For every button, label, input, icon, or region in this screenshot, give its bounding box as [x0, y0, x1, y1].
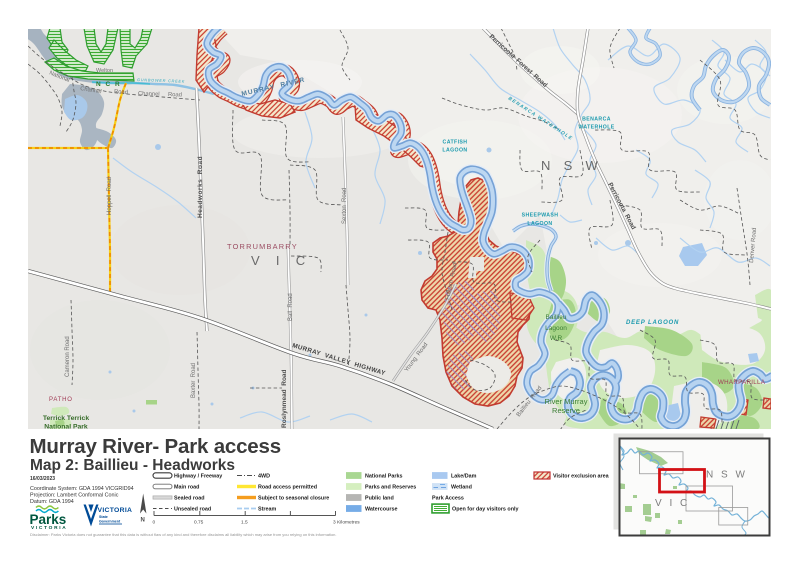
svg-text:Channel: Channel — [138, 91, 160, 98]
svg-text:Roslynmead Road: Roslynmead Road — [281, 369, 288, 428]
svg-text:V I C: V I C — [655, 498, 690, 509]
svg-text:River Murray: River Murray — [545, 397, 588, 406]
svg-text:Parks: Parks — [30, 512, 67, 527]
svg-text:Headworks Road: Headworks Road — [197, 156, 204, 218]
svg-text:National Parks: National Parks — [365, 474, 402, 480]
svg-text:Reserve: Reserve — [552, 406, 580, 415]
svg-text:WHARPARILLA: WHARPARILLA — [718, 379, 766, 386]
svg-text:Lake/Dam: Lake/Dam — [451, 474, 477, 480]
svg-text:Welton: Welton — [96, 68, 113, 74]
svg-text:4WD: 4WD — [258, 474, 270, 480]
svg-text:Stream: Stream — [258, 507, 276, 513]
svg-text:N S W: N S W — [706, 470, 747, 481]
svg-text:Map 2: Baillieu - Headworks: Map 2: Baillieu - Headworks — [30, 457, 235, 474]
svg-text:Coordinate System: GDA 1994 VI: Coordinate System: GDA 1994 VICGRID94 — [30, 486, 134, 492]
svg-text:VICTORIA: VICTORIA — [98, 507, 133, 514]
svg-text:Main road: Main road — [174, 485, 199, 491]
svg-text:Road access permitted: Road access permitted — [258, 485, 317, 491]
svg-text:VICTORIA: VICTORIA — [31, 525, 67, 531]
svg-text:V I C: V I C — [251, 253, 308, 268]
svg-text:CATFISH: CATFISH — [443, 140, 468, 146]
svg-text:Watercourse: Watercourse — [365, 507, 397, 513]
svg-text:Datum: GDA 1994: Datum: GDA 1994 — [30, 499, 74, 505]
svg-text:Disclaimer: Parks Victoria doe: Disclaimer: Parks Victoria does not guar… — [30, 532, 337, 537]
svg-text:Wetland: Wetland — [451, 485, 472, 491]
svg-text:Subject to seasonal closure: Subject to seasonal closure — [258, 496, 329, 502]
svg-text:Open for day visitors only: Open for day visitors only — [452, 507, 519, 513]
svg-text:Lagoon: Lagoon — [545, 325, 567, 332]
svg-text:1.5: 1.5 — [241, 520, 248, 526]
svg-text:BENARCA: BENARCA — [582, 117, 611, 123]
svg-text:Road: Road — [168, 92, 182, 98]
svg-text:WATERHOLE: WATERHOLE — [578, 125, 614, 131]
svg-text:Ball Road: Ball Road — [288, 293, 294, 321]
svg-text:Cameron Road: Cameron Road — [65, 336, 71, 377]
svg-text:0: 0 — [153, 520, 156, 526]
svg-text:LAGOON: LAGOON — [527, 221, 552, 227]
svg-text:Heppell Road: Heppell Road — [107, 177, 113, 215]
svg-text:Public land: Public land — [365, 496, 394, 502]
svg-text:Visitor exclusion area: Visitor exclusion area — [553, 474, 610, 480]
svg-text:SHEEPWASH: SHEEPWASH — [522, 213, 559, 219]
svg-text:Baxter Road: Baxter Road — [191, 363, 197, 398]
svg-text:Sexton Road: Sexton Road — [342, 188, 348, 224]
svg-text:TORRUMBARRY: TORRUMBARRY — [227, 242, 298, 251]
svg-text:0.75: 0.75 — [194, 520, 204, 526]
svg-text:Park Access: Park Access — [432, 496, 464, 502]
svg-text:LAGOON: LAGOON — [442, 148, 467, 154]
svg-text:Sealed road: Sealed road — [174, 496, 205, 502]
svg-text:N C R: N C R — [96, 81, 121, 88]
svg-text:Highway / Freeway: Highway / Freeway — [174, 474, 222, 480]
svg-text:3 Kilometres: 3 Kilometres — [333, 520, 360, 526]
svg-text:PATHO: PATHO — [49, 397, 73, 403]
svg-text:Terrick Terrick: Terrick Terrick — [43, 415, 89, 422]
svg-text:Unsealed road: Unsealed road — [174, 507, 211, 513]
svg-text:State: State — [99, 515, 108, 519]
svg-text:Projection: Lambert Conformal: Projection: Lambert Conformal Conic — [30, 493, 119, 499]
svg-text:Government: Government — [99, 520, 121, 524]
svg-text:16/03/2023: 16/03/2023 — [30, 476, 55, 482]
svg-text:DEEP LAGOON: DEEP LAGOON — [626, 320, 679, 326]
svg-text:N: N — [141, 518, 145, 524]
svg-text:Road: Road — [114, 89, 128, 96]
svg-text:N S W: N S W — [541, 158, 600, 173]
svg-text:W.R: W.R — [550, 335, 563, 342]
svg-text:Baillieu: Baillieu — [546, 314, 567, 321]
svg-text:Murray River- Park access: Murray River- Park access — [30, 435, 281, 458]
svg-text:Parks and Reserves: Parks and Reserves — [365, 485, 416, 491]
